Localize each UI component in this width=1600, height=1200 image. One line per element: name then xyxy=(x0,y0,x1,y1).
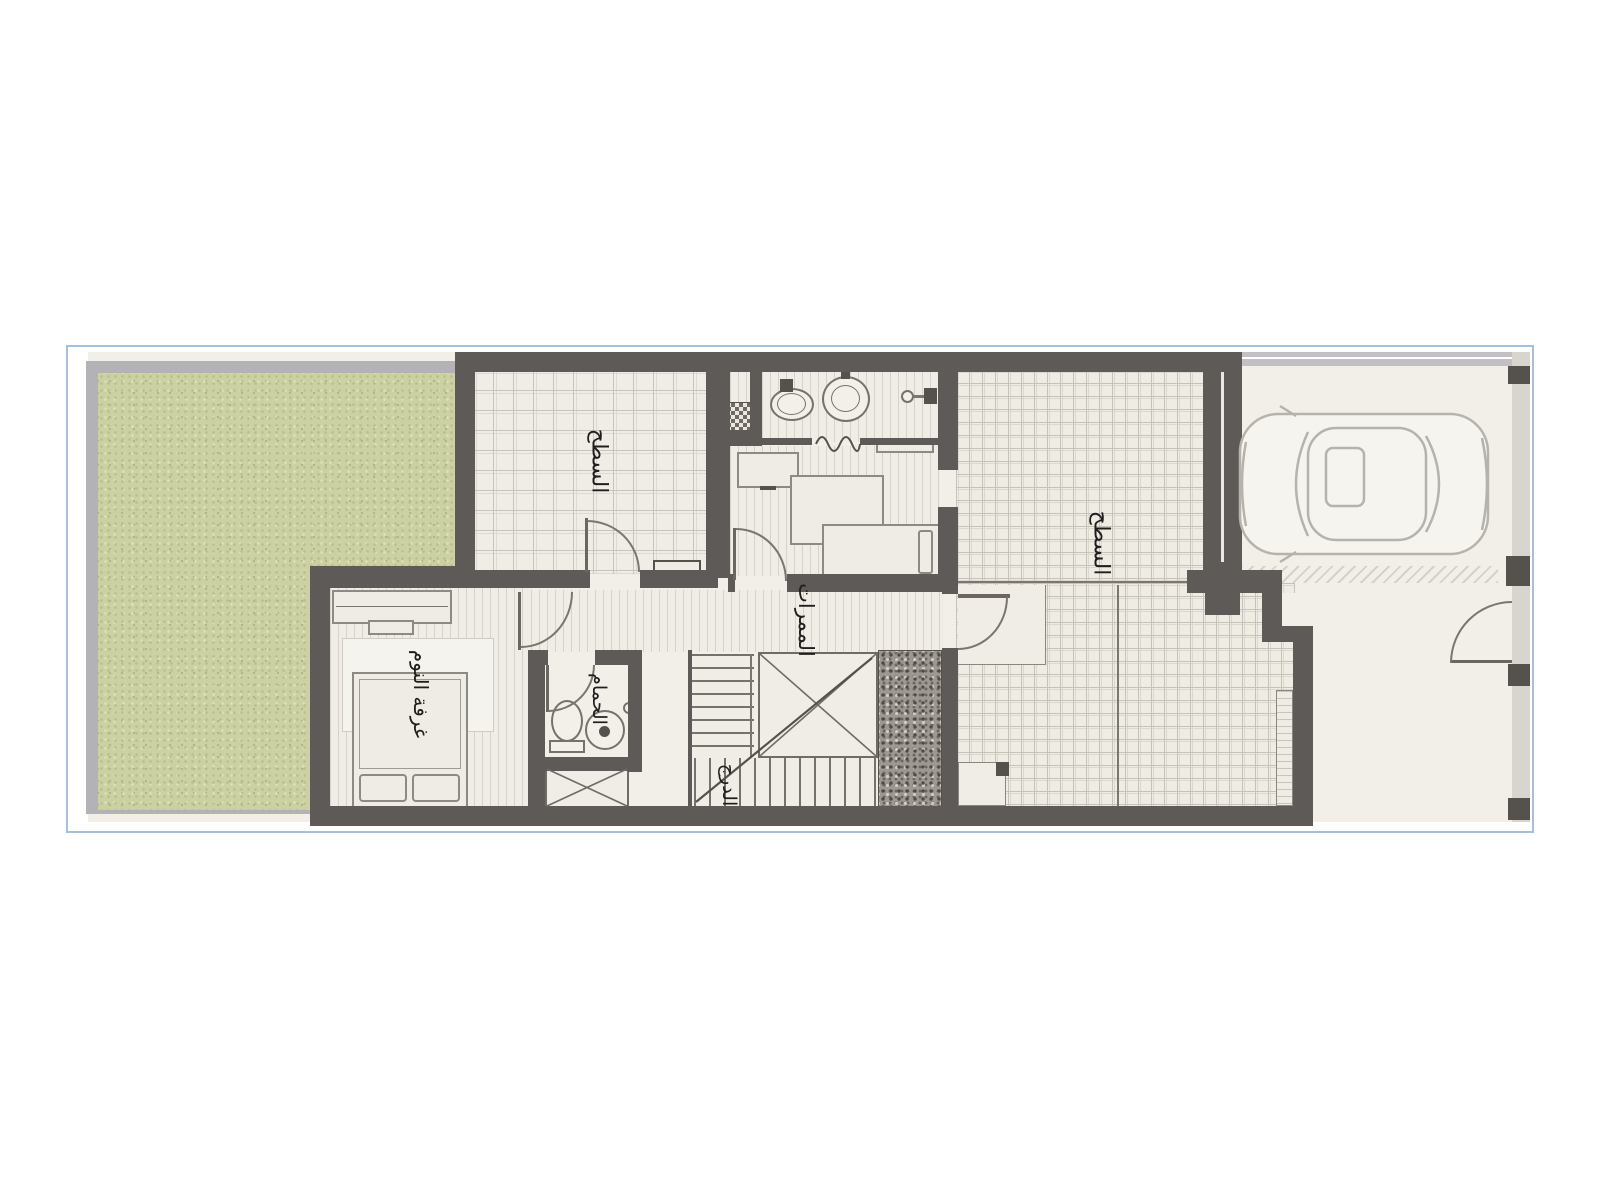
wall xyxy=(860,438,942,445)
pillow-icon xyxy=(359,774,407,802)
wall xyxy=(455,352,1222,372)
gate-post xyxy=(1508,798,1530,820)
sink-drain xyxy=(599,726,610,737)
toilet-tank xyxy=(549,740,585,753)
gate-post xyxy=(1508,664,1530,686)
garage-gate-line xyxy=(1222,357,1512,359)
wall xyxy=(310,566,475,588)
wall xyxy=(528,650,545,808)
garage-gate-band xyxy=(1222,352,1512,366)
pebble-shaft xyxy=(878,650,942,808)
stair-stringer xyxy=(750,654,752,758)
right-boundary-wall xyxy=(1512,352,1530,822)
wall xyxy=(310,806,1313,826)
label-terrace-right: السطح xyxy=(1089,511,1114,576)
garden xyxy=(98,373,457,569)
wall xyxy=(455,570,590,588)
label-stairs: الدرج xyxy=(718,764,740,806)
shaft-x-box xyxy=(545,767,629,808)
wall xyxy=(750,370,762,444)
wall xyxy=(310,566,330,826)
wall xyxy=(706,352,730,578)
terrace-right-upper-floor xyxy=(956,370,1205,585)
wall-cavity-line xyxy=(1221,372,1224,562)
wardrobe-rail xyxy=(336,606,448,607)
wall xyxy=(942,648,958,808)
wall-pillar xyxy=(1205,593,1240,615)
wall xyxy=(528,650,548,665)
faucet xyxy=(841,372,850,379)
flush-valve xyxy=(780,379,793,392)
wall xyxy=(1293,626,1313,826)
wall xyxy=(942,576,958,594)
gate-post xyxy=(1508,366,1530,384)
wall xyxy=(762,438,812,445)
desk-handle xyxy=(760,486,776,490)
garden xyxy=(98,569,310,810)
wardrobe-icon xyxy=(332,590,452,624)
sink-basin xyxy=(831,385,860,412)
planter-strip xyxy=(1276,690,1293,806)
label-terrace-left: السطح xyxy=(587,429,612,494)
terrace-divider-line xyxy=(1117,585,1119,806)
dresser-icon xyxy=(368,620,414,635)
floor-plan: السطح السطح الممرات غرفة النوم الحمام ال… xyxy=(0,0,1600,1200)
wall xyxy=(455,352,475,580)
stairs-upper-flight xyxy=(692,654,754,758)
label-bathroom: الحمام xyxy=(588,673,610,725)
wall xyxy=(938,352,958,470)
pillow-icon xyxy=(918,530,933,574)
gate-post xyxy=(1506,556,1530,586)
terrace-level-line xyxy=(958,581,1203,583)
stair-void xyxy=(758,652,878,758)
toilet-seat xyxy=(777,393,806,415)
entry-court xyxy=(1282,593,1313,628)
wall xyxy=(628,650,642,772)
shower-mount xyxy=(924,388,937,404)
label-bedroom: غرفة النوم xyxy=(409,650,433,739)
valve-box xyxy=(996,762,1009,776)
label-corridors: الممرات xyxy=(794,583,818,657)
wall xyxy=(528,757,642,771)
wall xyxy=(1187,570,1282,593)
pillow-icon xyxy=(412,774,460,802)
wall xyxy=(688,650,692,808)
